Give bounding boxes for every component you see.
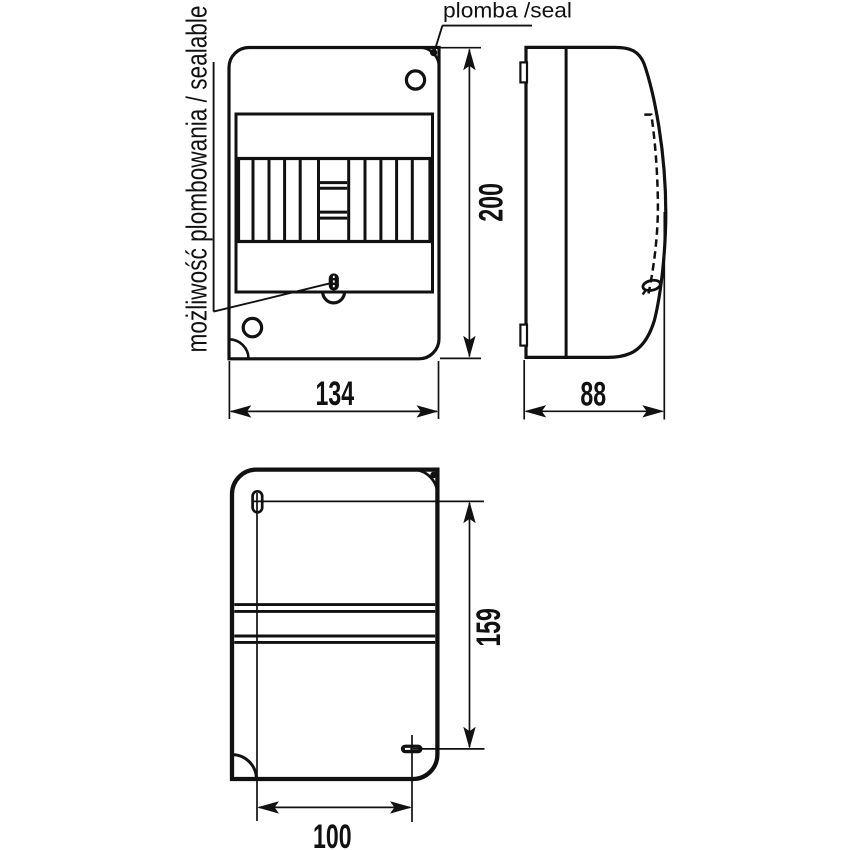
svg-text:możliwość plombowania / sealab: możliwość plombowania / sealable — [182, 6, 214, 353]
svg-text:134: 134 — [316, 376, 355, 413]
svg-text:88: 88 — [580, 376, 606, 413]
svg-text:159: 159 — [471, 608, 508, 647]
svg-text:100: 100 — [313, 819, 352, 850]
svg-text:200: 200 — [473, 183, 510, 222]
svg-text:plomba /seal: plomba /seal — [443, 0, 572, 22]
